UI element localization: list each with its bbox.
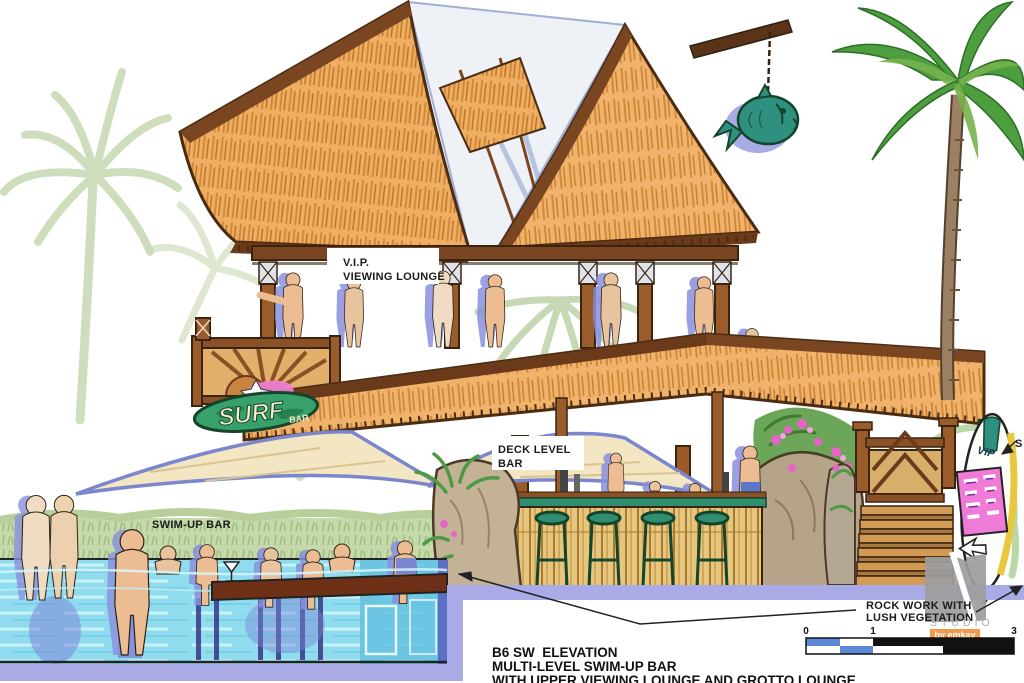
vip-lounge-label-line2: VIEWING LOUNGE	[343, 271, 445, 283]
swim-up-bar-label: SWIM-UP BAR	[152, 519, 231, 531]
deck-level-roof	[244, 334, 984, 440]
elevation-drawing-sheet: SURF BAR	[0, 0, 1024, 683]
title-line1: B6 SW ELEVATION	[492, 645, 618, 660]
scale-tick-3: 3	[1011, 626, 1017, 637]
vip-lounge-label-line1: V.I.P.	[343, 257, 369, 269]
deck-level-label-line2: BAR	[498, 458, 523, 470]
studio-logo: STUDIO by emkay	[925, 552, 994, 640]
surfboard-callout-label: S	[1015, 438, 1023, 450]
rock-work-label-line1: ROCK WORK WITH	[866, 600, 972, 612]
elevation-illustration: SURF BAR	[0, 0, 1024, 683]
right-palm-tree	[832, 2, 1024, 400]
title-line2: MULTI-LEVEL SWIM-UP BAR	[492, 659, 677, 674]
scale-tick-0: 0	[803, 626, 809, 637]
deck-level-bar	[494, 392, 766, 586]
rock-work-label-line2: LUSH VEGETATION	[866, 612, 973, 624]
title-block: B6 SW ELEVATION MULTI-LEVEL SWIM-UP BAR …	[492, 645, 856, 683]
title-line3: WITH UPPER VIEWING LOUNGE AND GROTTO LOU…	[492, 673, 856, 683]
scale-tick-1: 1	[870, 626, 876, 637]
hanging-fish-ornament	[715, 32, 798, 153]
deck-level-label-line1: DECK LEVEL	[498, 444, 571, 456]
graphic-scale-bar: 0 1 3	[803, 626, 1017, 654]
